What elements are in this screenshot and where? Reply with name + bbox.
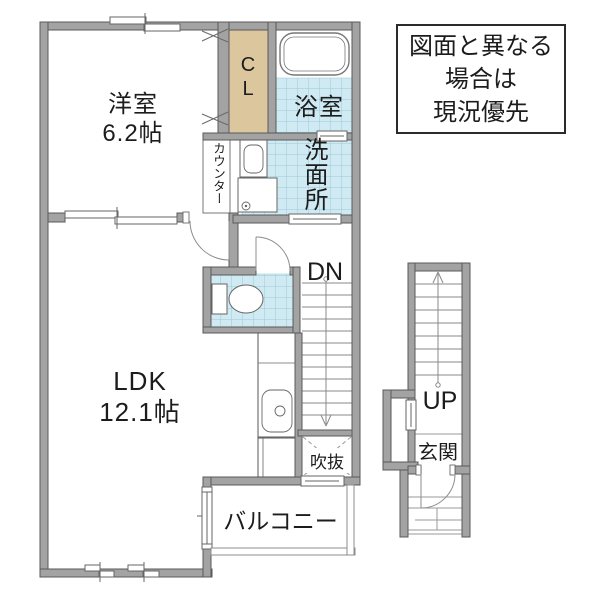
washroom-label: 洗面所: [296, 137, 331, 212]
disclaimer-note: 図面と異なる 場合は 現況優先: [396, 24, 566, 134]
stairs-down: [302, 277, 352, 426]
void-label: 吹抜: [304, 448, 350, 473]
stairs-down-label: DN: [304, 258, 346, 287]
western-room-label: 洋室 6.2帖: [68, 90, 198, 148]
toilet-icon: [212, 284, 263, 314]
bathtub-icon: [280, 33, 349, 75]
kitchen-counter-icon: [258, 331, 298, 437]
washroom-sliding-door: [289, 214, 341, 224]
toilet-door: [256, 237, 290, 271]
western-room-top-window: [110, 13, 180, 34]
floorplan-page: 洋室 6.2帖 LDK 12.1帖 浴室 洗面所 CL カウンター DN UP …: [0, 0, 600, 600]
ldk-hall-door: [190, 221, 229, 260]
disclaimer-line-3: 現況優先: [433, 96, 529, 129]
disclaimer-line-1: 図面と異なる: [409, 30, 553, 63]
stairs-up: [415, 272, 462, 387]
entrance-side-window: [406, 400, 416, 430]
bathroom-label: 浴室: [283, 87, 355, 122]
entrance-label: 玄関: [412, 436, 464, 465]
void-window: [301, 476, 344, 486]
washing-machine-pan-icon: [238, 178, 277, 212]
western-room-ldk-sliding-door: [65, 207, 177, 229]
refrigerator-space: [258, 438, 297, 477]
ldk-size: 12.1帖: [75, 397, 205, 428]
disclaimer-line-2: 場合は: [445, 63, 517, 96]
ldk-name: LDK: [75, 366, 205, 397]
entrance-door: [421, 474, 455, 508]
western-room-name: 洋室: [68, 90, 198, 119]
balcony-sliding-door: [197, 487, 212, 549]
balcony-label: バルコニー: [213, 502, 348, 536]
western-room-size: 6.2帖: [68, 119, 198, 148]
counter-label: カウンター: [209, 142, 228, 205]
closet-label: CL: [236, 54, 259, 102]
washbasin-icon: [240, 140, 267, 177]
ldk-label: LDK 12.1帖: [75, 366, 205, 428]
stairs-up-label: UP: [419, 387, 461, 416]
